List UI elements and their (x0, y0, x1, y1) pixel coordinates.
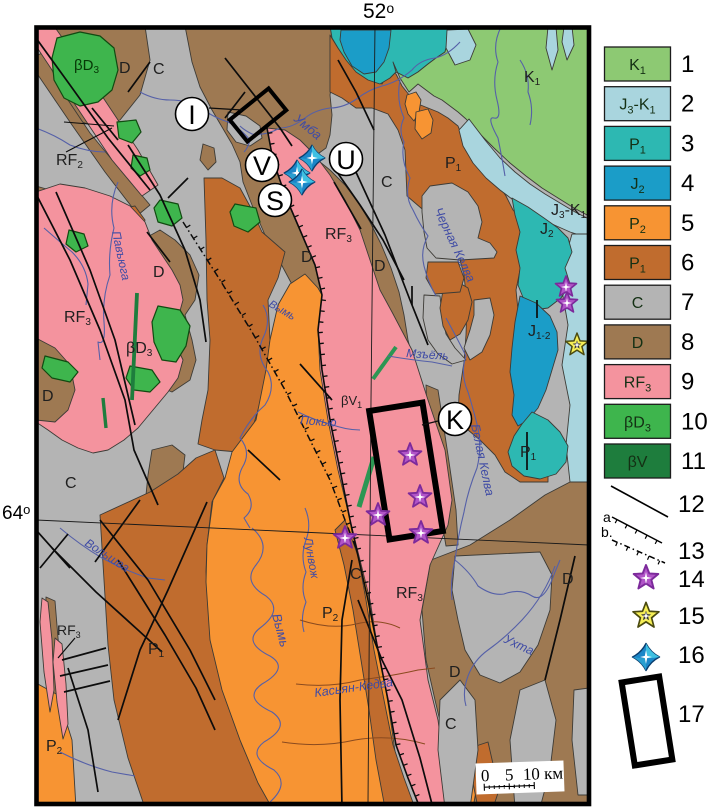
svg-text:D: D (449, 664, 461, 681)
svg-text:16: 16 (678, 642, 705, 669)
svg-text:D: D (119, 60, 131, 77)
svg-text:C: C (632, 295, 644, 312)
svg-text:8: 8 (681, 329, 694, 356)
svg-text:4: 4 (681, 170, 694, 197)
svg-text:1: 1 (681, 51, 694, 78)
svg-text:14: 14 (678, 566, 705, 593)
svg-text:I: I (188, 100, 196, 130)
svg-text:D: D (42, 388, 54, 405)
svg-text:K: K (446, 405, 464, 435)
svg-text:D: D (632, 335, 644, 352)
svg-text:9: 9 (681, 369, 694, 396)
svg-text:15: 15 (678, 603, 705, 630)
svg-text:5: 5 (505, 765, 514, 784)
svg-text:D: D (153, 264, 165, 281)
svg-text:a: a (603, 509, 611, 525)
svg-text:βV: βV (628, 454, 648, 471)
svg-text:11: 11 (681, 448, 706, 475)
svg-text:S: S (266, 186, 284, 216)
svg-text:10: 10 (681, 408, 708, 435)
svg-text:D: D (374, 258, 386, 275)
svg-text:C: C (153, 61, 165, 78)
svg-text:7: 7 (681, 289, 694, 316)
svg-text:6: 6 (681, 250, 694, 277)
svg-text:3: 3 (681, 130, 694, 157)
svg-text:0: 0 (481, 766, 490, 785)
svg-text:C: C (65, 475, 77, 492)
svg-text:U: U (336, 145, 356, 175)
svg-text:b.: b. (601, 524, 613, 540)
svg-text:5: 5 (681, 210, 694, 237)
svg-text:Покью: Покью (300, 413, 337, 430)
svg-text:17: 17 (678, 701, 705, 728)
svg-text:C: C (381, 174, 393, 191)
svg-text:D: D (562, 571, 574, 588)
svg-text:V: V (253, 151, 271, 181)
svg-text:D: D (301, 249, 313, 266)
svg-text:C: C (350, 566, 362, 583)
svg-text:Мзъёль: Мзъёль (406, 346, 449, 363)
svg-text:10 км: 10 км (523, 763, 564, 783)
svg-text:13: 13 (678, 538, 705, 565)
svg-text:C: C (445, 716, 457, 733)
svg-text:12: 12 (678, 491, 705, 518)
svg-text:2: 2 (681, 91, 694, 118)
